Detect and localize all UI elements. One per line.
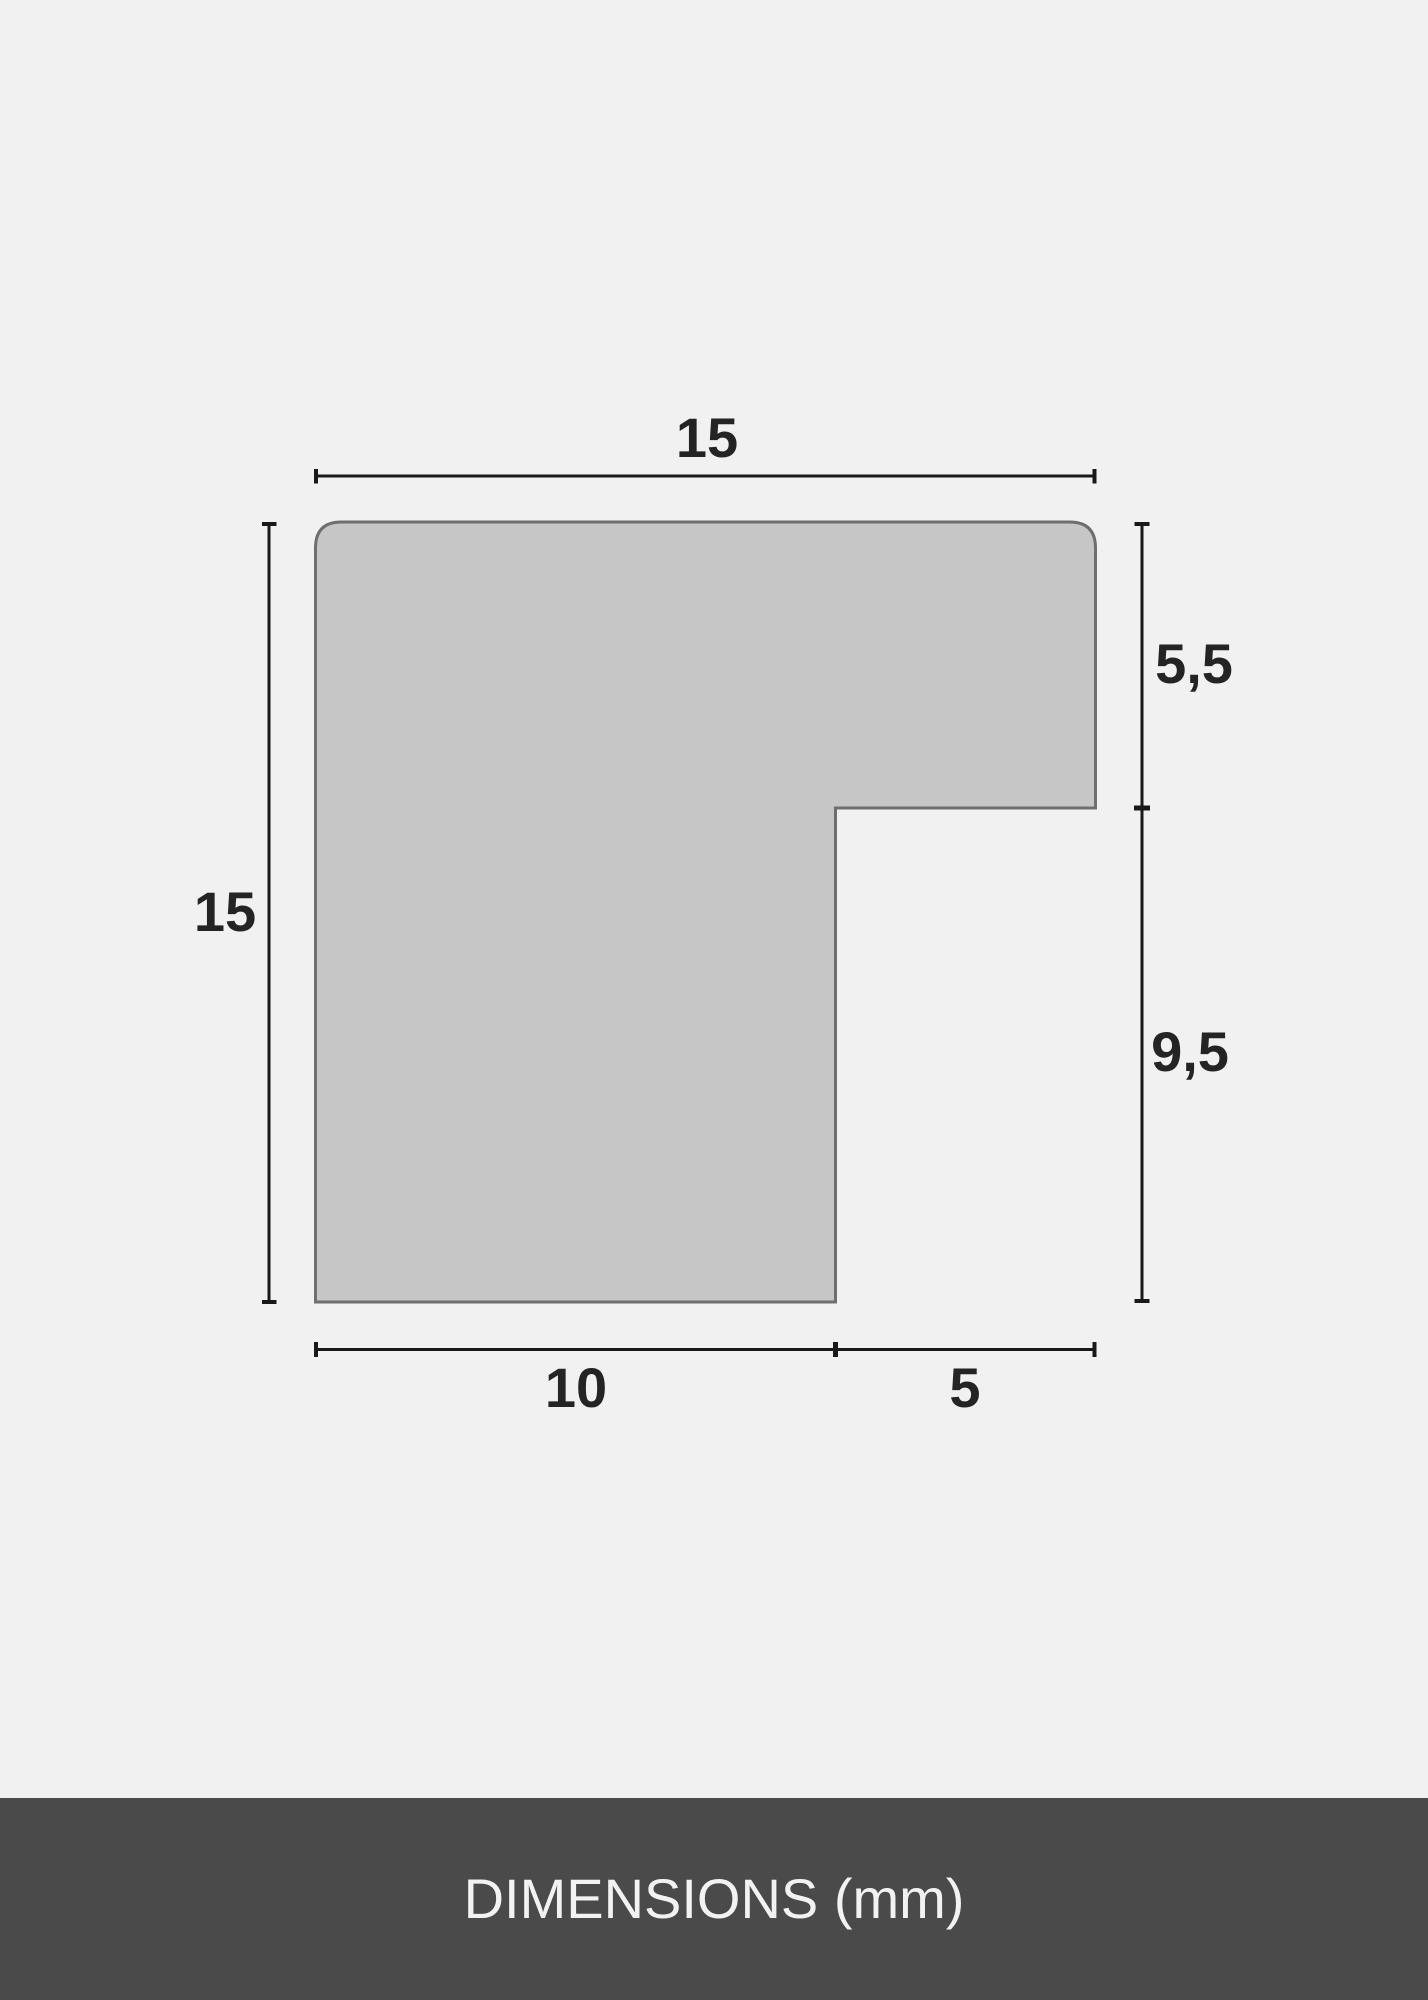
svg-text:5: 5 [949, 1356, 980, 1419]
svg-text:10: 10 [545, 1356, 607, 1419]
svg-text:15: 15 [194, 880, 256, 943]
svg-text:15: 15 [676, 406, 738, 469]
svg-text:9,5: 9,5 [1151, 1020, 1229, 1083]
svg-text:5,5: 5,5 [1155, 632, 1233, 695]
